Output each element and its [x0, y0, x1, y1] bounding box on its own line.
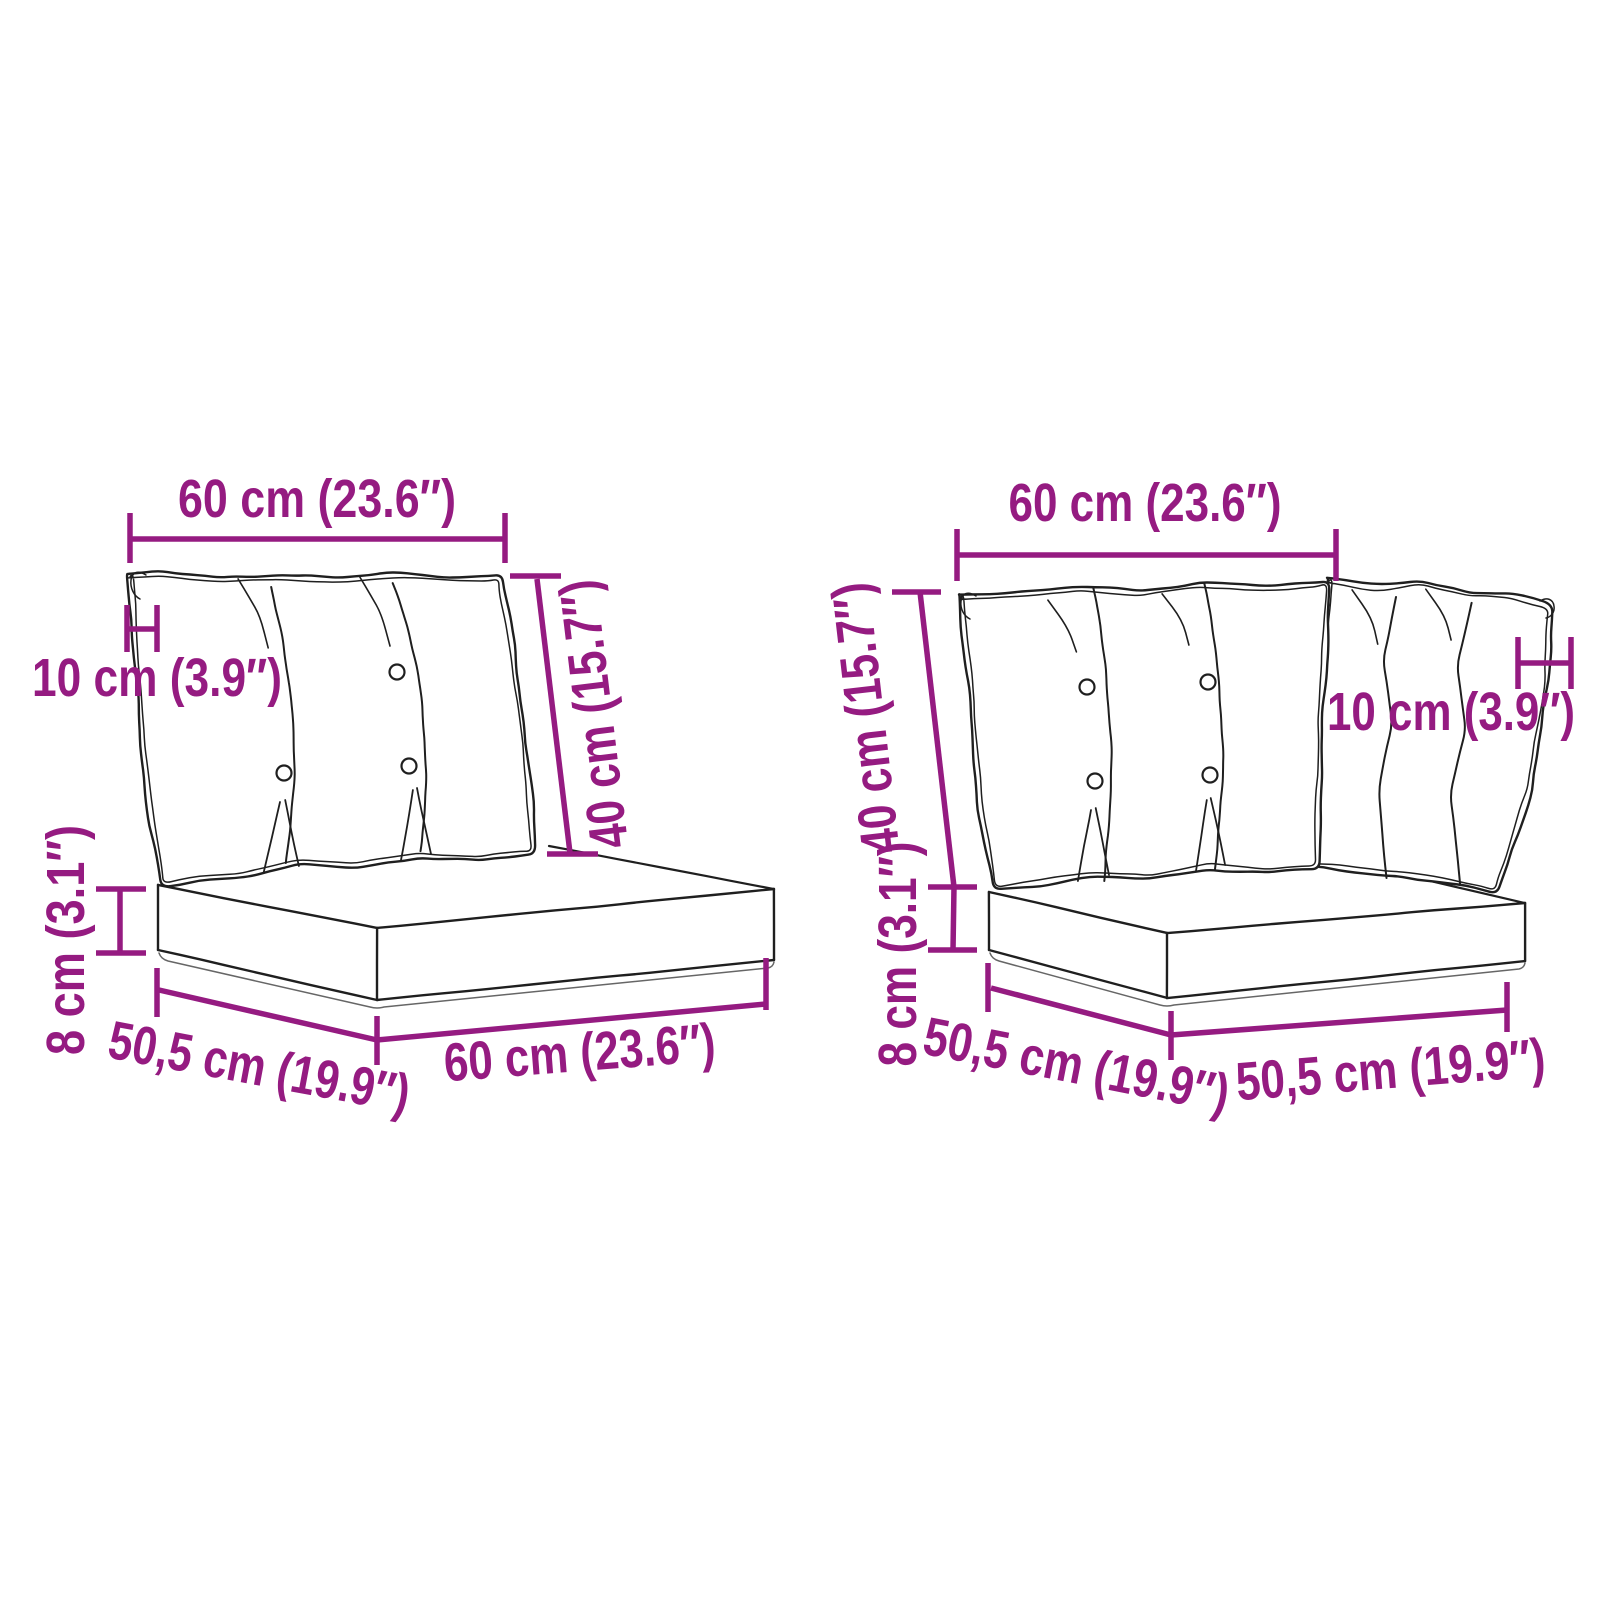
svg-text:60 cm (23.6″): 60 cm (23.6″)	[178, 469, 456, 529]
svg-text:10 cm (3.9″): 10 cm (3.9″)	[1327, 682, 1575, 742]
svg-text:60 cm (23.6″): 60 cm (23.6″)	[1009, 473, 1282, 533]
svg-text:10 cm (3.9″): 10 cm (3.9″)	[32, 648, 282, 708]
svg-text:8 cm (3.1″): 8 cm (3.1″)	[36, 825, 96, 1055]
svg-text:8 cm (3.1″): 8 cm (3.1″)	[868, 842, 928, 1067]
